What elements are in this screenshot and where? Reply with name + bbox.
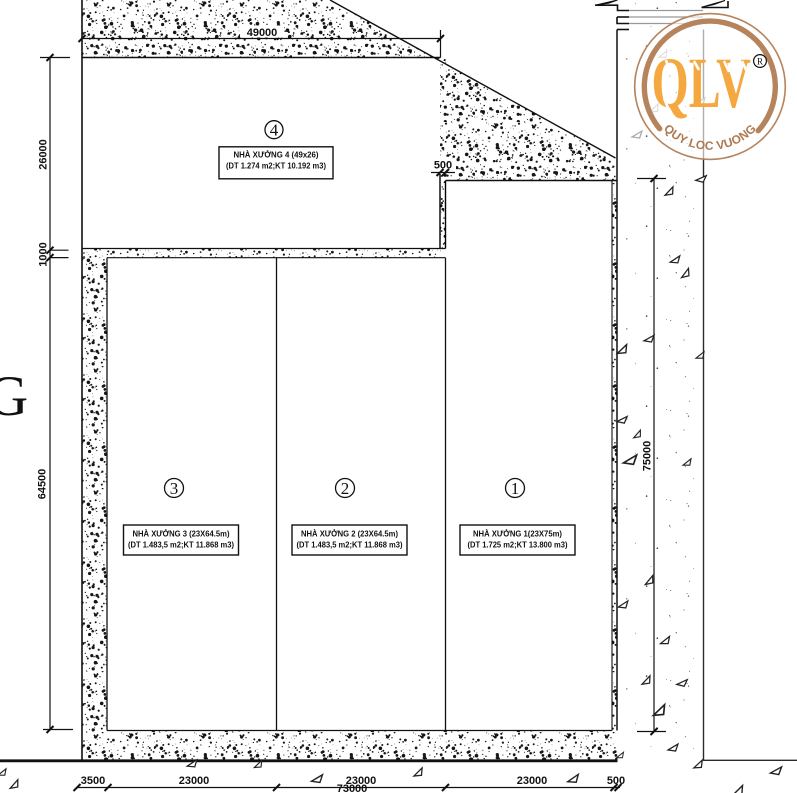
svg-text:NHÀ XƯỞNG 1(23X75m): NHÀ XƯỞNG 1(23X75m) [473, 528, 562, 539]
svg-text:3: 3 [170, 479, 179, 498]
svg-text:1: 1 [511, 479, 520, 498]
svg-text:75000: 75000 [642, 441, 654, 472]
svg-text:49000: 49000 [247, 27, 278, 39]
svg-text:3500: 3500 [81, 775, 105, 787]
svg-text:4: 4 [270, 121, 279, 140]
svg-text:NHÀ XƯỞNG 3 (23X64.5m): NHÀ XƯỞNG 3 (23X64.5m) [133, 528, 230, 539]
svg-text:(DT 1.483,5 m2;KT 11.868 m3): (DT 1.483,5 m2;KT 11.868 m3) [128, 540, 234, 550]
svg-text:(DT 1.274 m2;KT 10.192 m3): (DT 1.274 m2;KT 10.192 m3) [226, 161, 326, 171]
svg-text:26000: 26000 [38, 139, 50, 170]
svg-text:23000: 23000 [517, 775, 548, 787]
svg-text:QLV: QLV [652, 45, 751, 124]
svg-text:NHÀ XƯỞNG 4 (49x26): NHÀ XƯỞNG 4 (49x26) [234, 149, 319, 160]
svg-text:(DT 1.725 m2;KT 13.800 m3): (DT 1.725 m2;KT 13.800 m3) [468, 540, 568, 550]
svg-text:R: R [757, 57, 763, 67]
svg-text:1000: 1000 [38, 242, 50, 266]
svg-text:G: G [0, 365, 28, 428]
svg-text:2: 2 [341, 479, 350, 498]
svg-text:500: 500 [607, 775, 625, 787]
svg-text:73000: 73000 [337, 783, 368, 793]
svg-text:NHÀ XƯỞNG 2 (23X64.5m): NHÀ XƯỞNG 2 (23X64.5m) [301, 528, 398, 539]
svg-text:23000: 23000 [179, 775, 210, 787]
svg-text:(DT 1.483,5 m2;KT 11.868 m3): (DT 1.483,5 m2;KT 11.868 m3) [297, 540, 403, 550]
svg-text:64500: 64500 [37, 469, 49, 500]
